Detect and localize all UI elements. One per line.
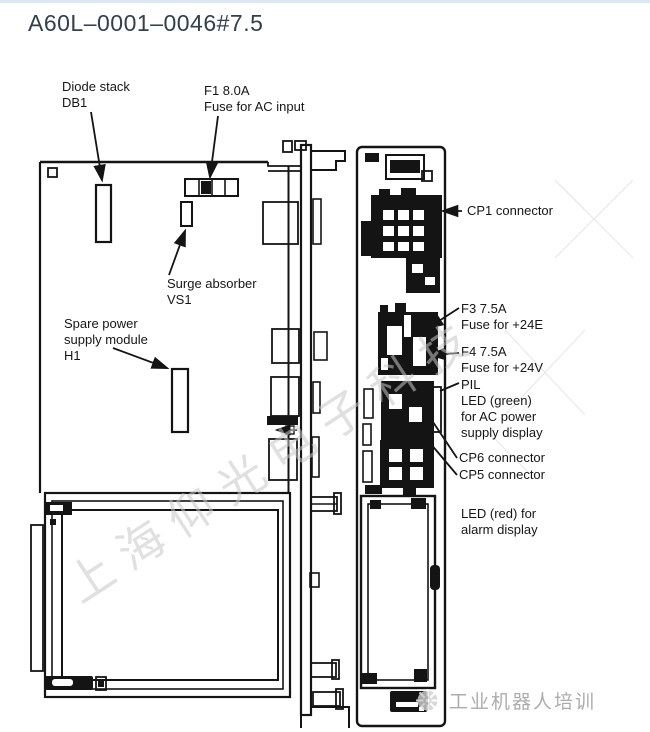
label-cp6-connector: CP6 connector	[459, 450, 545, 466]
label-pil-led: PIL LED (green) for AC power supply disp…	[461, 377, 543, 441]
label-fuse-f1: F1 8.0A Fuse for AC input	[204, 83, 304, 115]
watermark-footer: 工业机器人培训	[414, 687, 596, 714]
label-cp5-connector: CP5 connector	[459, 467, 545, 483]
cp1-connector-shape	[361, 188, 442, 293]
gear-icon	[414, 687, 441, 714]
lower-opening	[361, 496, 440, 688]
arrow-f1	[210, 116, 218, 177]
fuse-f1-shape	[185, 179, 238, 196]
arrow-db1	[91, 112, 102, 180]
page: A60L–0001–0046#7.5	[0, 0, 650, 732]
label-surge-absorber: Surge absorber VS1	[167, 276, 257, 308]
surge-absorber-vs1-shape	[181, 202, 192, 226]
right-panel	[357, 147, 445, 726]
spare-module-h1-shape	[172, 369, 188, 432]
edge-connector	[31, 525, 43, 671]
label-cp1-connector: CP1 connector	[467, 203, 553, 219]
arrow-vs1	[169, 231, 185, 275]
label-led-red: LED (red) for alarm display	[461, 506, 538, 538]
label-spare-power-h1: Spare power supply module H1	[64, 316, 148, 364]
label-diode-stack-db1: Diode stack DB1	[62, 79, 130, 111]
mounting-hole	[48, 168, 57, 177]
diode-stack-db1-shape	[96, 185, 111, 242]
watermark-footer-text: 工业机器人培训	[449, 687, 596, 714]
